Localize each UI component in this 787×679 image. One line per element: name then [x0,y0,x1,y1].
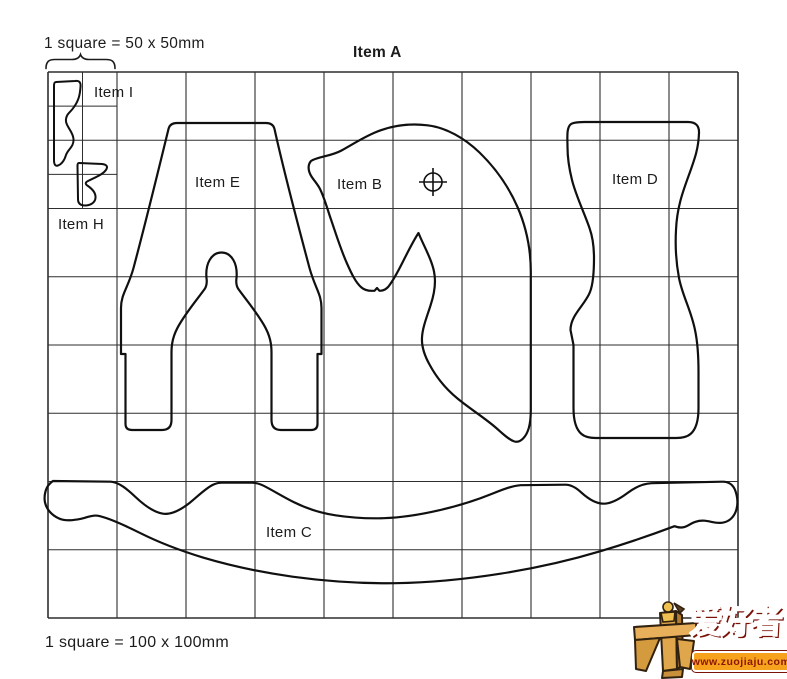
label-item-c: Item C [266,524,312,541]
item-c-outline [45,481,738,583]
item-h-outline [78,163,107,206]
watermark-url-banner: www.zuojiaju.com [692,651,787,672]
brace-icon [46,55,115,69]
pattern-canvas [0,0,787,679]
sheet-title: Item A [353,44,402,62]
watermark-logo: 爱好者 www.zuojiaju.com [630,597,787,679]
item-d-outline [567,122,699,438]
pattern-sheet: 1 square = 50 x 50mm Item A Item I Item … [0,0,787,679]
item-b-outline [309,125,531,442]
label-item-e: Item E [195,174,240,191]
scale-note-small: 1 square = 50 x 50mm [44,35,205,53]
label-item-d: Item D [612,171,658,188]
watermark-url-text: www.zuojiaju.com [692,656,787,668]
scale-note-large: 1 square = 100 x 100mm [45,634,229,652]
label-item-i: Item I [94,84,133,101]
grid [48,72,738,618]
crosshair-pivot-icon [419,168,447,196]
watermark-brand-text: 爱好者 [689,605,781,638]
label-item-h: Item H [58,216,104,233]
item-i-outline [54,81,81,166]
label-item-b: Item B [337,176,382,193]
